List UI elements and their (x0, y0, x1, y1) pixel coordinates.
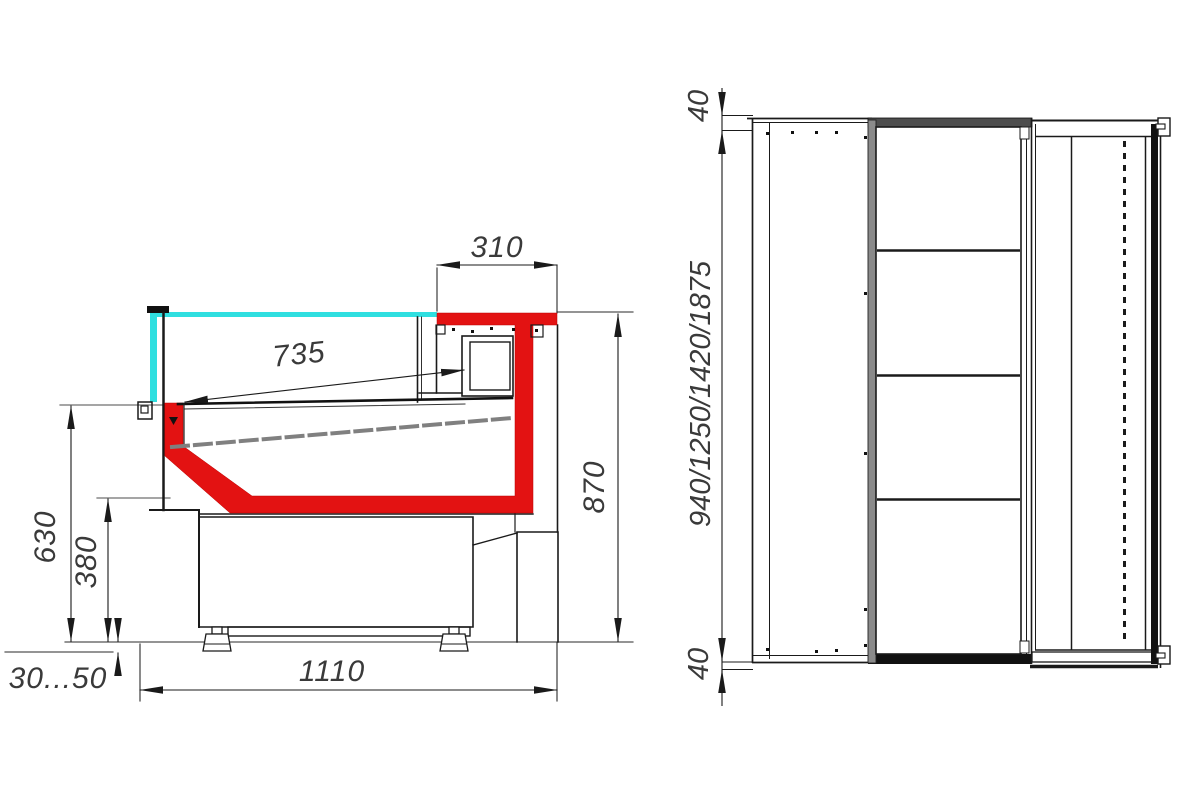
side-extension-lines (60, 405, 178, 498)
dim-1110-label: 1110 (299, 655, 365, 688)
plan-shelf-well (868, 118, 1032, 664)
dim-40-bottom-label: 40 (683, 648, 715, 680)
well-left-rail (868, 120, 876, 663)
dim-630-label: 630 (29, 510, 62, 563)
well-bottom-band (868, 654, 1032, 664)
red-bumper-profile (165, 313, 557, 513)
foot-left (203, 627, 231, 651)
dim-lengths-label: 940/1250/1420/1875 (685, 260, 717, 527)
corner-tab-top (1156, 118, 1170, 136)
technical-drawing-canvas: 310 735 870 630 380 30...50 1110 (0, 0, 1200, 800)
foot-right (440, 627, 468, 651)
side-section-view: 310 735 870 630 380 30...50 1110 (5, 231, 633, 701)
dim-735-label: 735 (271, 335, 327, 373)
dim-870-label: 870 (578, 460, 611, 513)
dim-30-50-label: 30...50 (9, 662, 108, 695)
display-deck (169, 398, 512, 447)
dim-380-label: 380 (70, 535, 103, 588)
deck-surface-dashed (172, 418, 512, 447)
well-top-band (868, 118, 1032, 127)
plan-back-panel (747, 118, 872, 663)
glass-top-cap (147, 306, 169, 313)
dim-40-top-label: 40 (683, 90, 715, 122)
dim-310-label: 310 (470, 231, 523, 264)
panel-screw-dots (766, 131, 867, 653)
plan-view: 40 940/1250/1420/1875 40 (683, 88, 1170, 706)
front-rail-thick (1151, 124, 1158, 664)
corner-tab-bottom (1156, 646, 1170, 664)
drawing-svg: 310 735 870 630 380 30...50 1110 (0, 0, 1200, 800)
plan-glass-front-section (1030, 118, 1170, 668)
plan-dimensions (722, 88, 753, 706)
adjustable-feet (203, 627, 468, 651)
dim-line-735 (185, 370, 464, 402)
